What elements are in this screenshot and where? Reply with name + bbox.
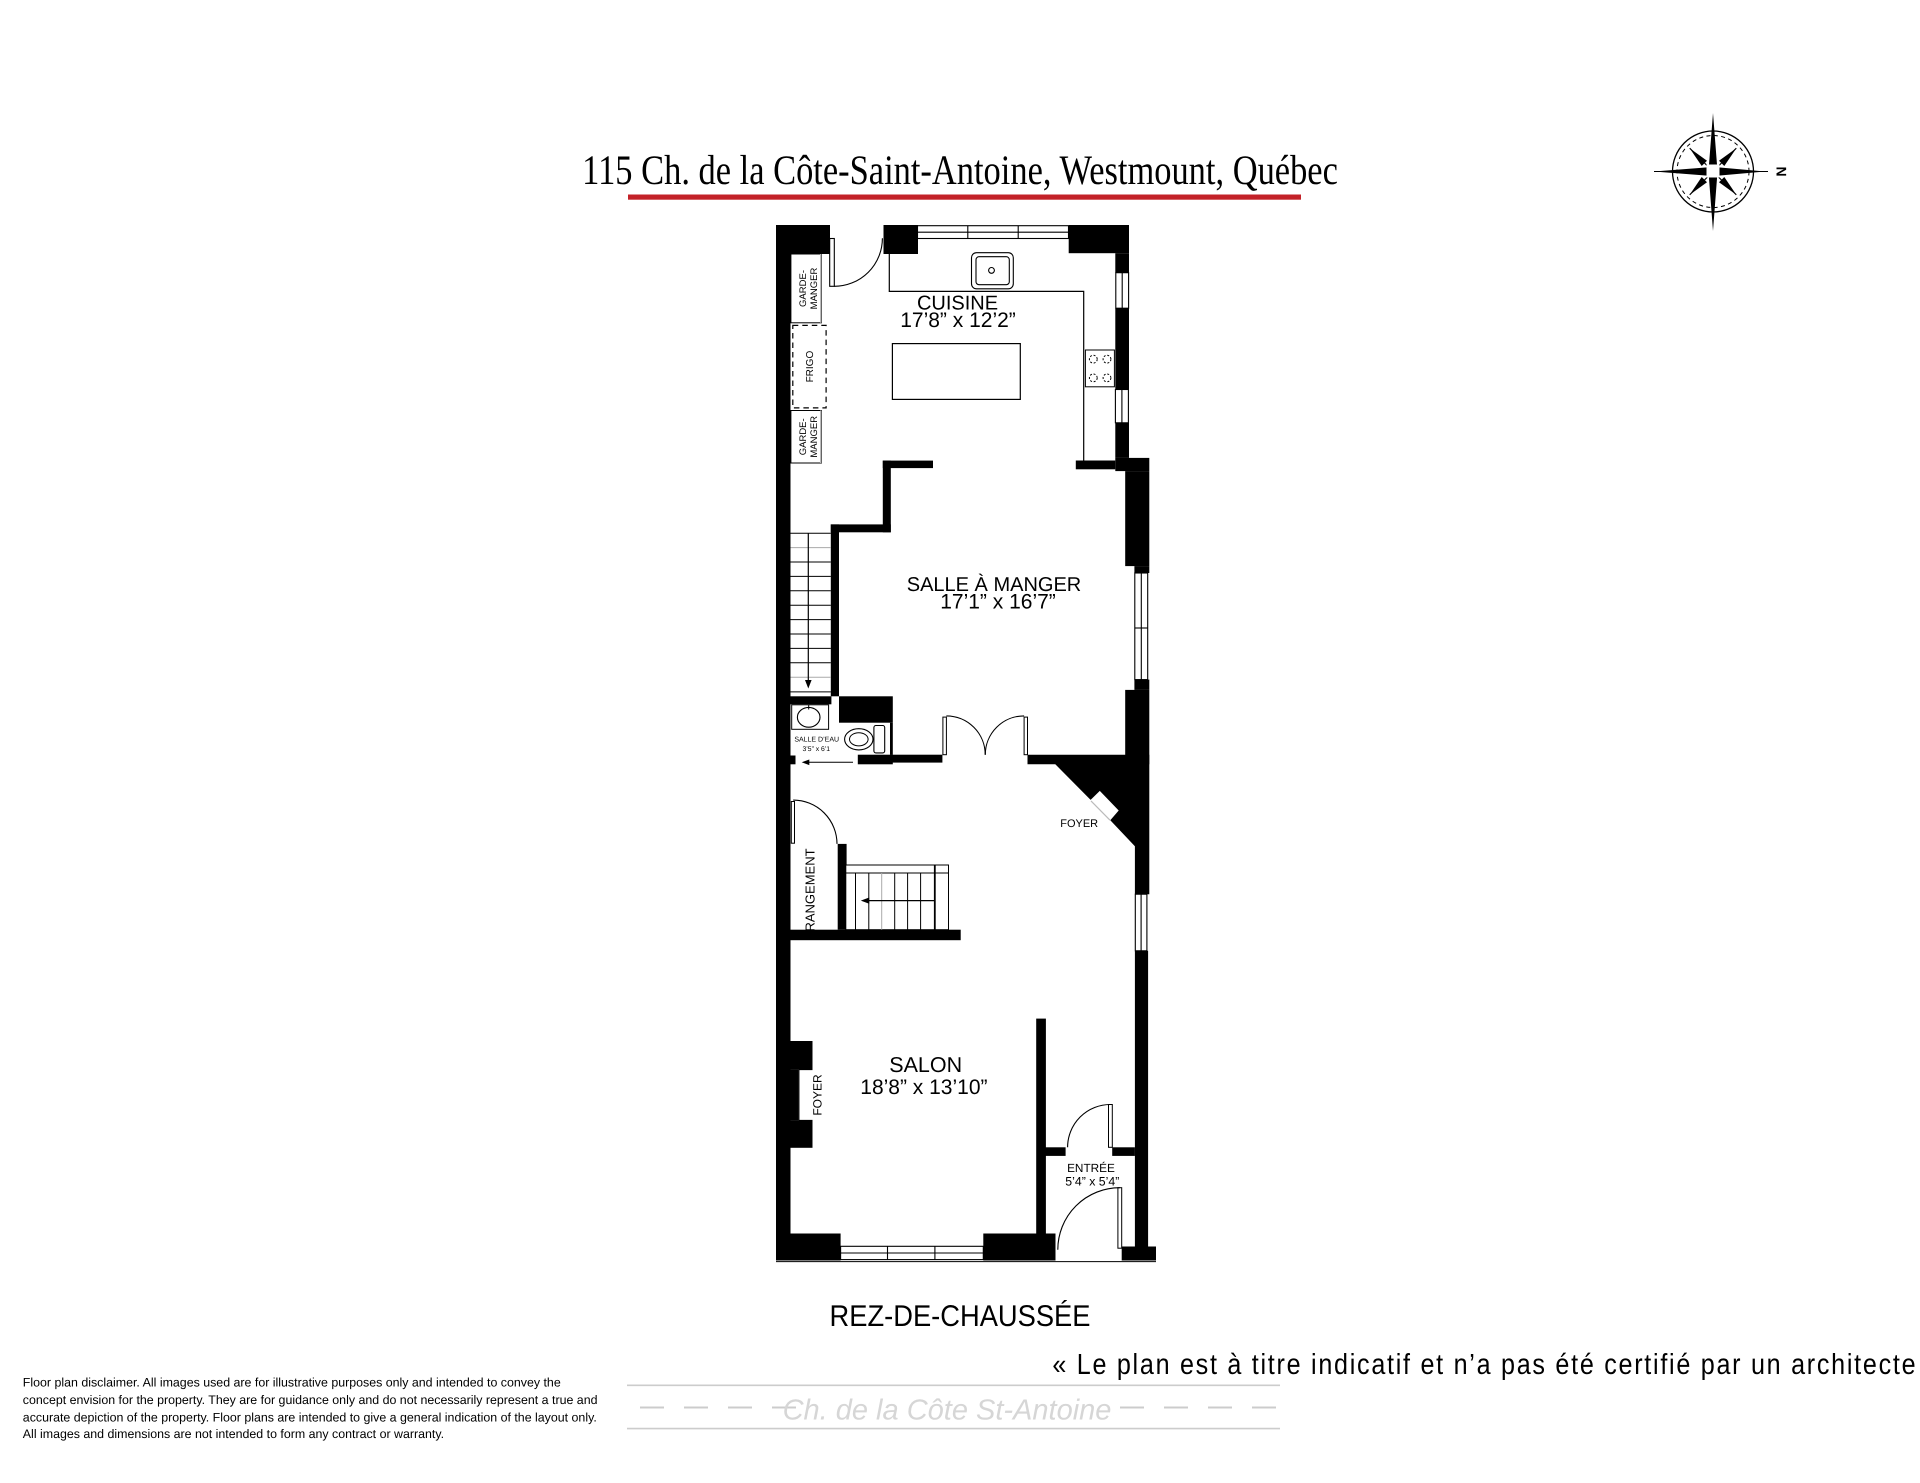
svg-text:REZ-DE-CHAUSSÉE: REZ-DE-CHAUSSÉE xyxy=(830,1299,1091,1333)
svg-text:17’1” x 16’7”: 17’1” x 16’7” xyxy=(940,590,1056,613)
svg-text:115 Ch. de la Côte-Saint-Antoi: 115 Ch. de la Côte-Saint-Antoine, Westmo… xyxy=(582,148,1338,194)
svg-text:RANGEMENT: RANGEMENT xyxy=(803,848,818,931)
svg-text:3’5” x 6’1: 3’5” x 6’1 xyxy=(803,746,831,753)
svg-text:GARDE-: GARDE- xyxy=(798,418,809,455)
svg-text:accurate depiction of the prop: accurate depiction of the property. Floo… xyxy=(23,1410,597,1424)
svg-text:MANGER: MANGER xyxy=(809,268,820,310)
svg-text:FRIGO: FRIGO xyxy=(805,351,816,383)
svg-text:Floor plan disclaimer. All ima: Floor plan disclaimer. All images used a… xyxy=(23,1375,561,1389)
svg-text:FOYER: FOYER xyxy=(1060,818,1098,830)
svg-text:SALON: SALON xyxy=(889,1053,962,1077)
svg-text:N: N xyxy=(1773,166,1789,176)
svg-text:FOYER: FOYER xyxy=(811,1074,825,1116)
svg-text:All images and dimensions are: All images and dimensions are not intend… xyxy=(23,1427,444,1441)
svg-text:SALLE D’EAU: SALLE D’EAU xyxy=(794,737,839,744)
svg-text:17’8” x 12’2”: 17’8” x 12’2” xyxy=(900,309,1016,332)
svg-text:concept envision for the prope: concept envision for the property. They … xyxy=(23,1393,598,1407)
svg-text:18’8” x 13’10”: 18’8” x 13’10” xyxy=(860,1076,987,1099)
svg-text:Ch. de la Côte St-Antoine: Ch. de la Côte St-Antoine xyxy=(783,1395,1112,1427)
svg-text:« Le plan est à titre indicati: « Le plan est à titre indicatif et n’a p… xyxy=(1052,1349,1920,1381)
svg-text:GARDE-: GARDE- xyxy=(798,270,809,307)
svg-text:ENTRÉE: ENTRÉE xyxy=(1067,1161,1115,1175)
svg-text:5’4” x 5’4”: 5’4” x 5’4” xyxy=(1065,1175,1119,1189)
svg-text:MANGER: MANGER xyxy=(809,416,820,458)
